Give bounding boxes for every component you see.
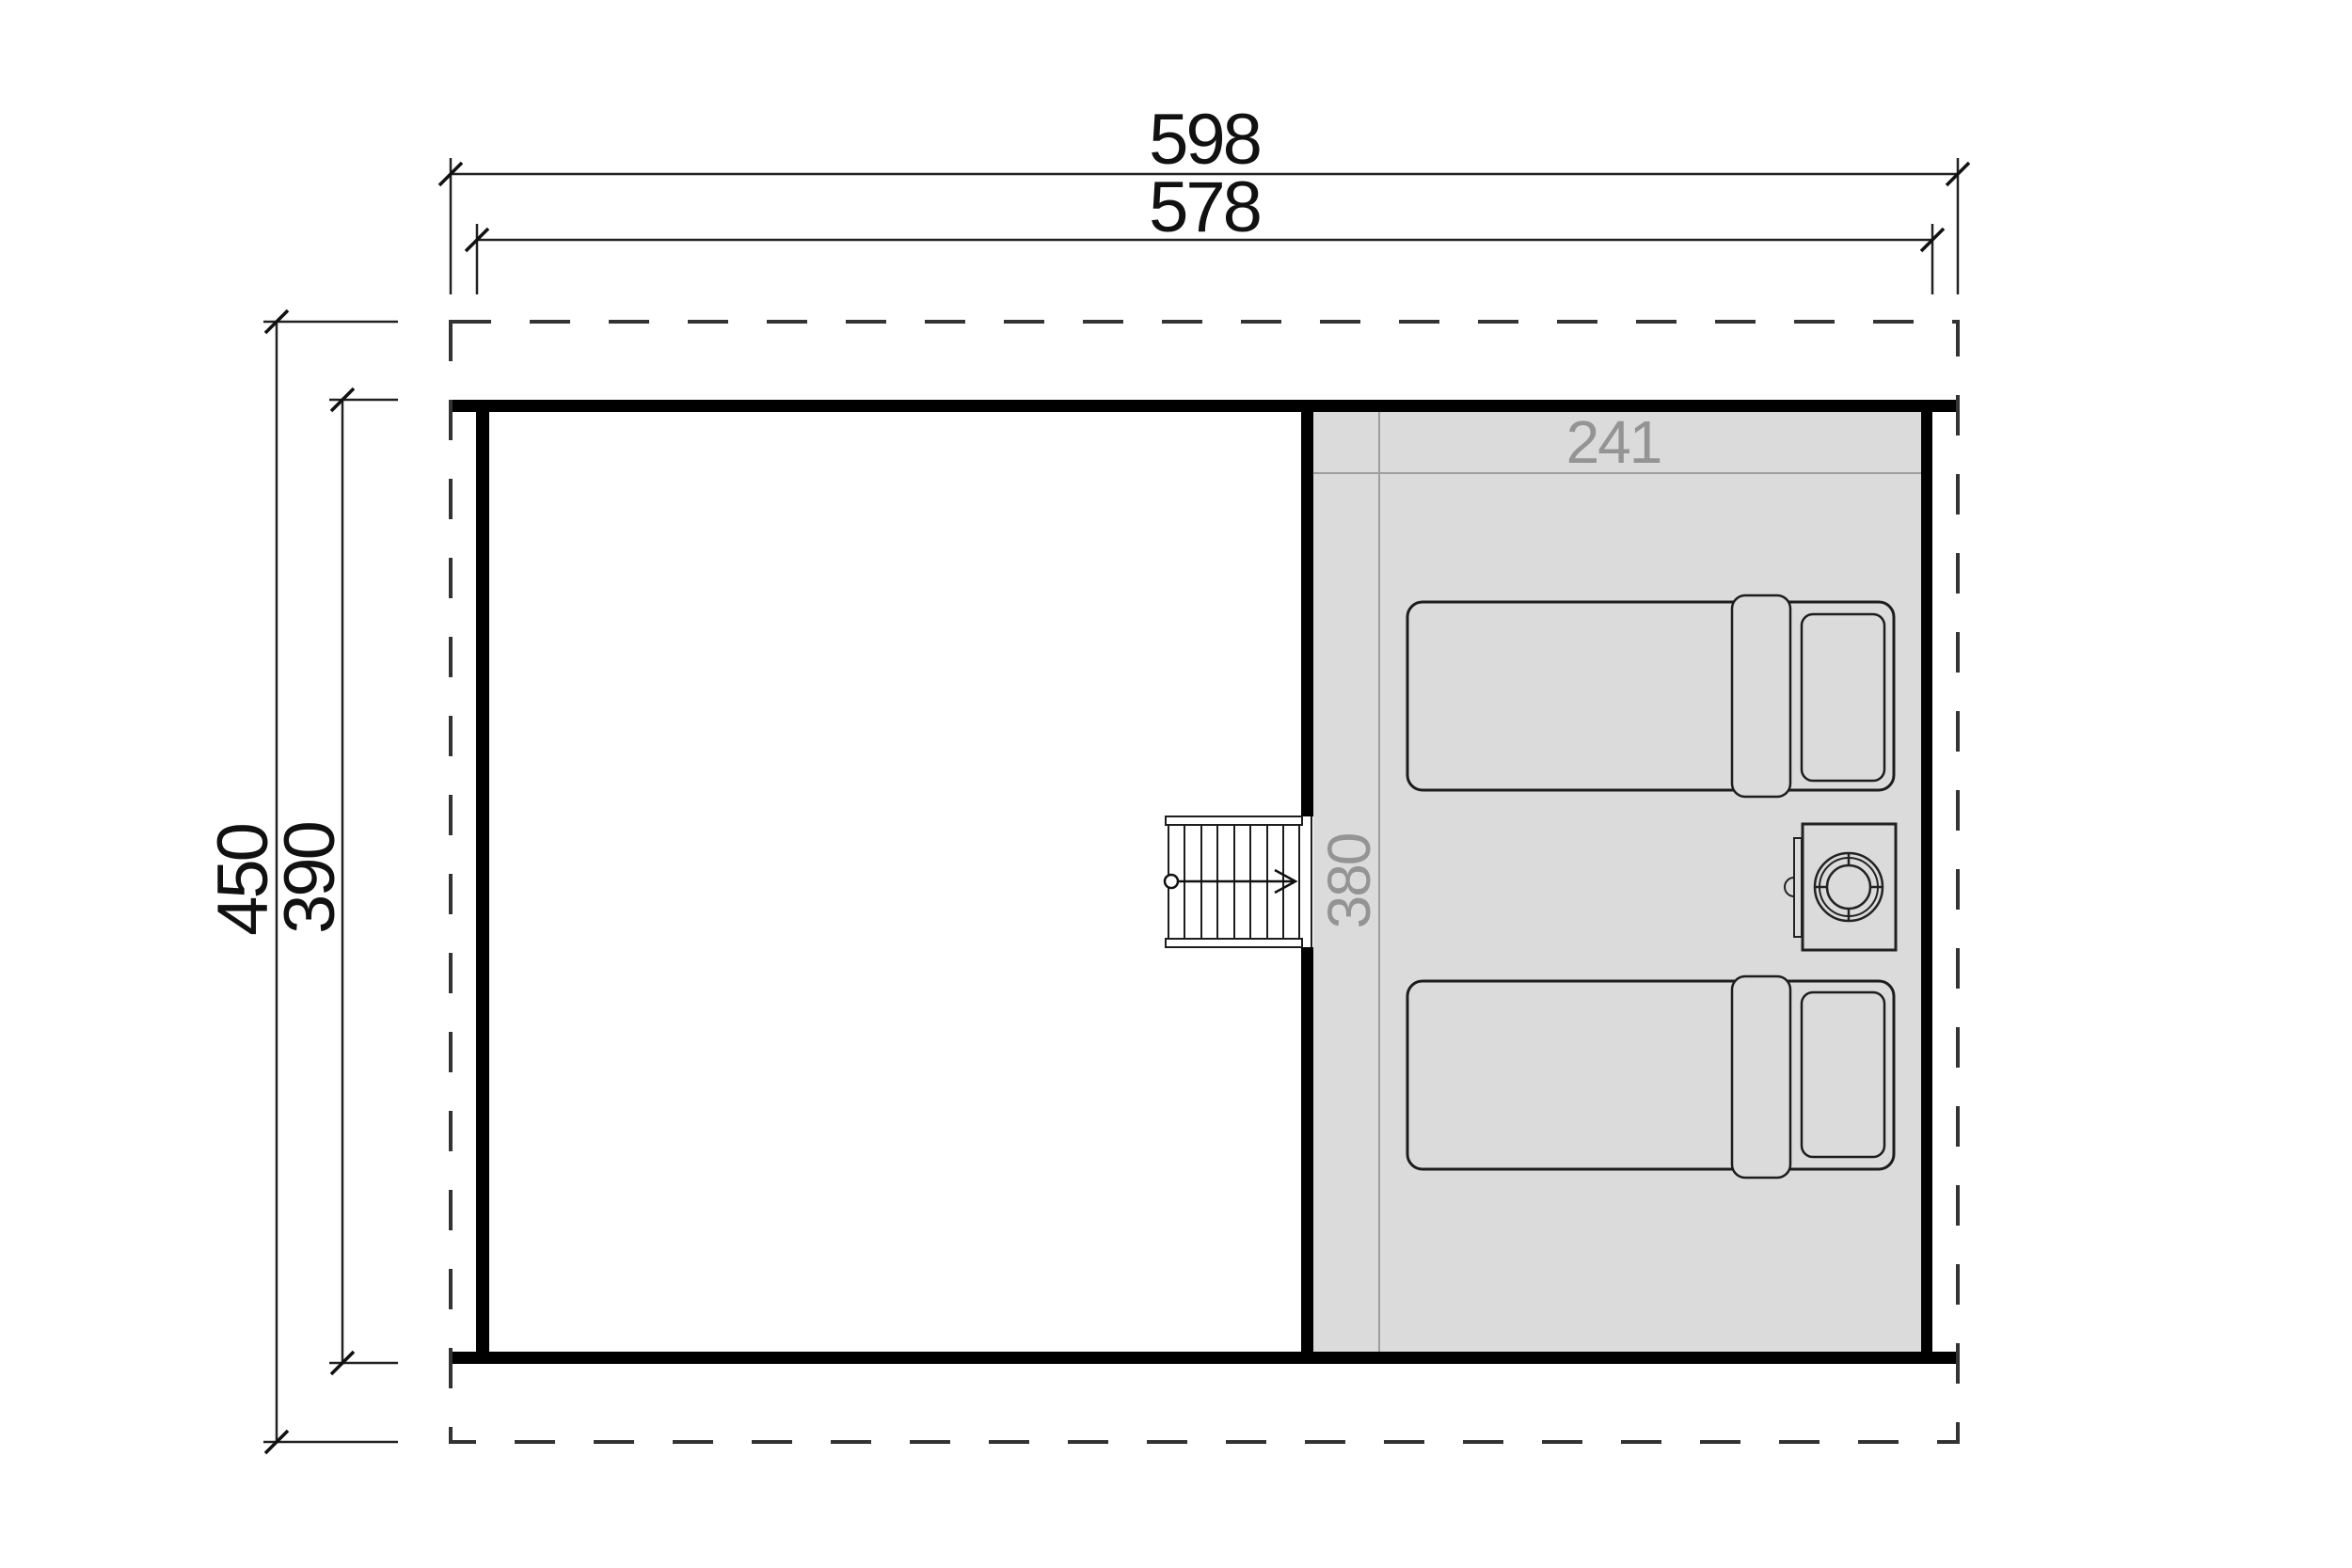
bed-upper xyxy=(1407,595,1894,797)
bed-lower-pillow xyxy=(1802,992,1884,1157)
table-handle-bump xyxy=(1785,878,1794,896)
bed-lower xyxy=(1407,976,1894,1178)
dim-label-overall-depth: 450 xyxy=(208,786,279,974)
dim-label-overall-width: 598 xyxy=(1110,104,1298,176)
dim-label-wall-width: 578 xyxy=(1110,172,1298,244)
dim-label-wall-depth: 390 xyxy=(275,784,346,973)
dim-label-loft-depth: 380 xyxy=(1319,787,1379,975)
bed-lower-duvet-fold xyxy=(1732,976,1790,1178)
floor-plan-drawing: 598 578 450 390 241 380 xyxy=(0,0,2352,1568)
dim-label-loft-width: 241 xyxy=(1519,412,1708,472)
bed-upper-duvet-fold xyxy=(1732,595,1790,797)
table-side-rail xyxy=(1794,838,1802,937)
staircase xyxy=(1165,816,1311,947)
bed-upper-pillow xyxy=(1802,614,1884,781)
bedside-table xyxy=(1785,824,1896,950)
